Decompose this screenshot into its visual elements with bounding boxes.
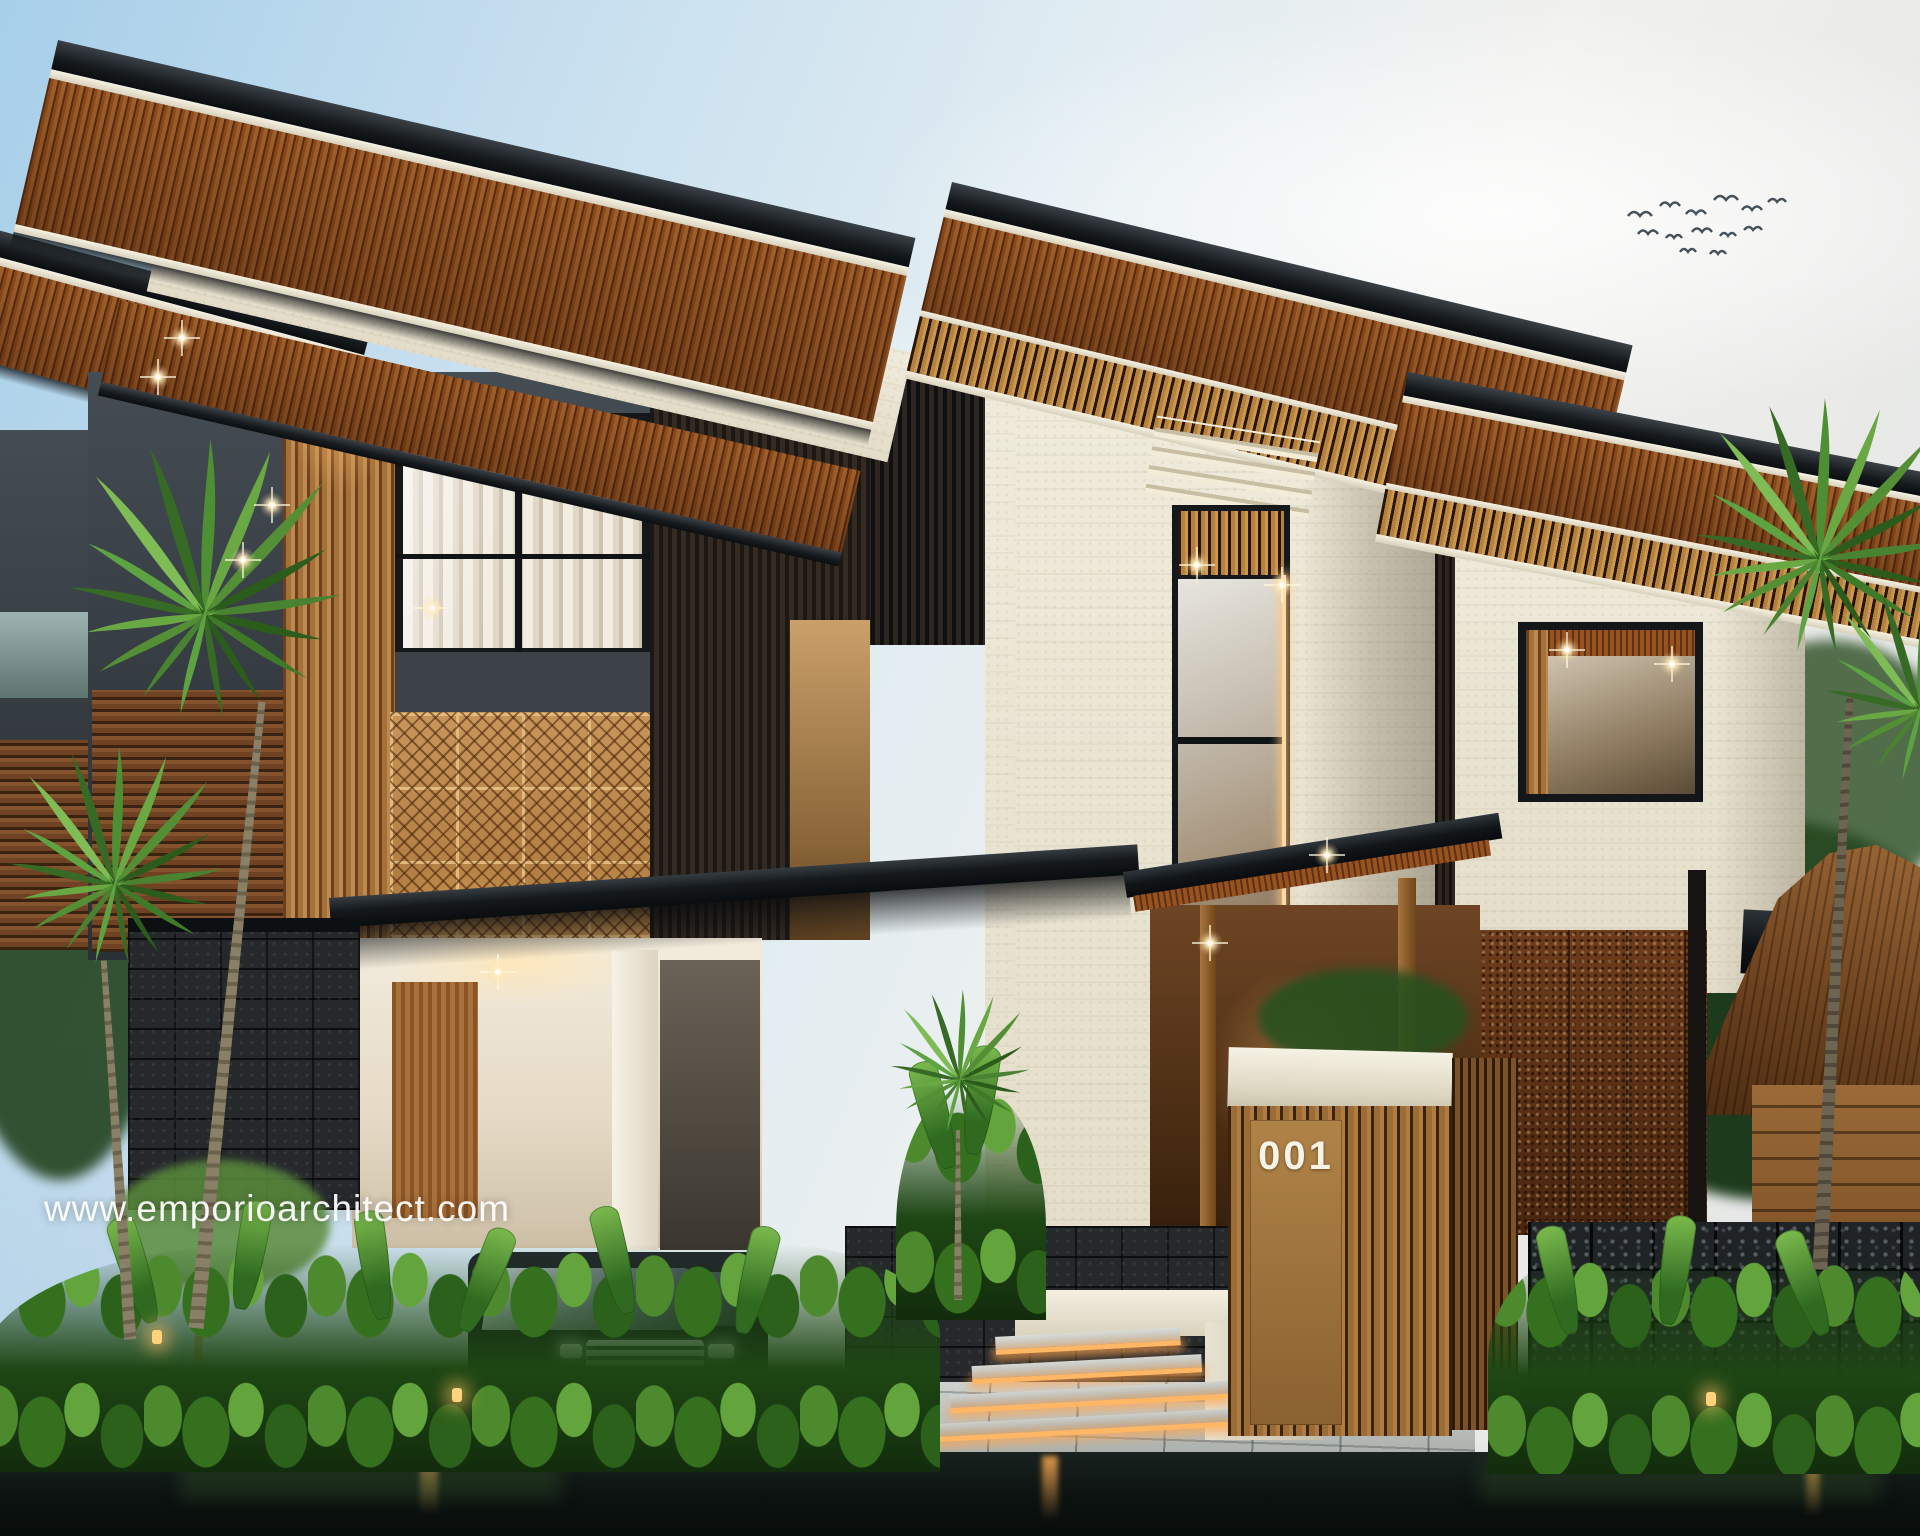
gazebo-post — [1688, 870, 1706, 1230]
birds-flock-icon — [1622, 188, 1802, 272]
porch-white-column — [612, 950, 658, 1250]
hood-wood-jamb — [1526, 630, 1548, 794]
garage-wood-door — [392, 982, 478, 1218]
fan-palm-icon — [0, 740, 260, 1030]
light-reflection — [1042, 1456, 1058, 1520]
garden-light-icon — [152, 1330, 162, 1344]
star-flare-icon — [140, 359, 176, 395]
star-flare-icon — [480, 954, 516, 990]
tower-window-rail — [1178, 737, 1284, 744]
fan-palm-icon — [1790, 580, 1920, 840]
garden-light-icon — [1706, 1392, 1716, 1406]
fan-palm-icon — [865, 985, 1055, 1175]
porch-opening — [660, 960, 760, 1250]
star-flare-icon — [1654, 646, 1690, 682]
star-flare-icon — [1264, 567, 1300, 603]
star-flare-icon — [1179, 547, 1215, 583]
gate-number-panel: 001 — [1250, 1120, 1342, 1425]
spandrel-charcoal — [395, 652, 650, 712]
star-flare-icon — [254, 487, 290, 523]
star-flare-icon — [1549, 632, 1585, 668]
star-flare-icon — [414, 590, 450, 626]
watermark-text: www.emporioarchitect.com — [44, 1188, 510, 1230]
star-flare-icon — [1192, 925, 1228, 961]
garden-light-icon — [452, 1388, 462, 1402]
house-number: 001 — [1250, 1134, 1342, 1179]
architectural-render-scene: 001 — [0, 0, 1920, 1536]
star-flare-icon — [225, 542, 261, 578]
gate-cap-white — [1227, 1047, 1452, 1113]
star-flare-icon — [1309, 837, 1345, 873]
window-rail — [395, 554, 650, 559]
star-flare-icon — [164, 320, 200, 356]
